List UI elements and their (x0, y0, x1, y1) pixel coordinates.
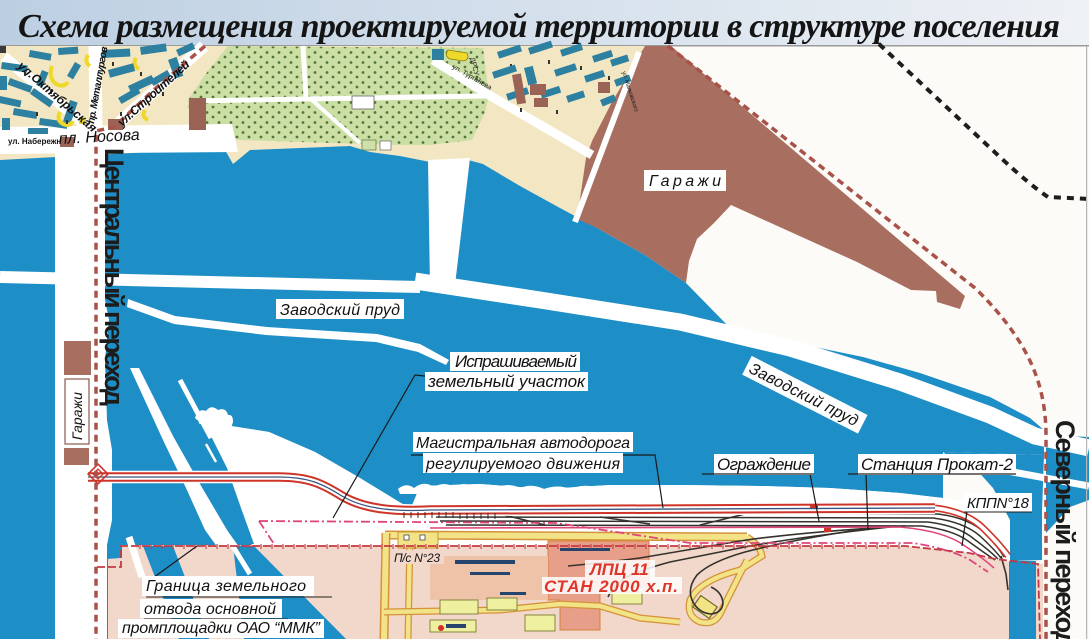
svg-text:П/с N°23: П/с N°23 (394, 551, 440, 565)
svg-text:Испрашиваемый: Испрашиваемый (455, 352, 578, 371)
svg-text:земельный участок: земельный участок (427, 372, 586, 391)
svg-text:КППN°18: КППN°18 (967, 495, 1030, 512)
svg-text:Заводский пруд: Заводский пруд (280, 302, 400, 319)
svg-text:Северный переход: Северный переход (1050, 420, 1080, 639)
svg-text:отвода основной: отвода основной (144, 601, 276, 618)
svg-text:Магистральная автодорога: Магистральная автодорога (416, 435, 630, 452)
svg-text:Центральный переход: Центральный переход (99, 148, 129, 406)
svg-text:промплощадки ОАО “ММК”: промплощадки ОАО “ММК” (122, 620, 321, 637)
svg-text:Станция Прокат-2: Станция Прокат-2 (861, 455, 1014, 474)
svg-text:Гаражи: Гаражи (69, 392, 85, 440)
svg-text:ул. Набережн: ул. Набережн (8, 137, 61, 146)
svg-text:Схема размещения проектируемой: Схема размещения проектируемой территори… (18, 8, 1060, 45)
svg-text:СТАН 2000 х.п.: СТАН 2000 х.п. (544, 577, 678, 596)
svg-text:Граница земельного: Граница земельного (146, 578, 306, 595)
svg-text:регулируемого движения: регулируемого движения (425, 456, 620, 473)
svg-text:Ограждение: Ограждение (717, 455, 811, 474)
